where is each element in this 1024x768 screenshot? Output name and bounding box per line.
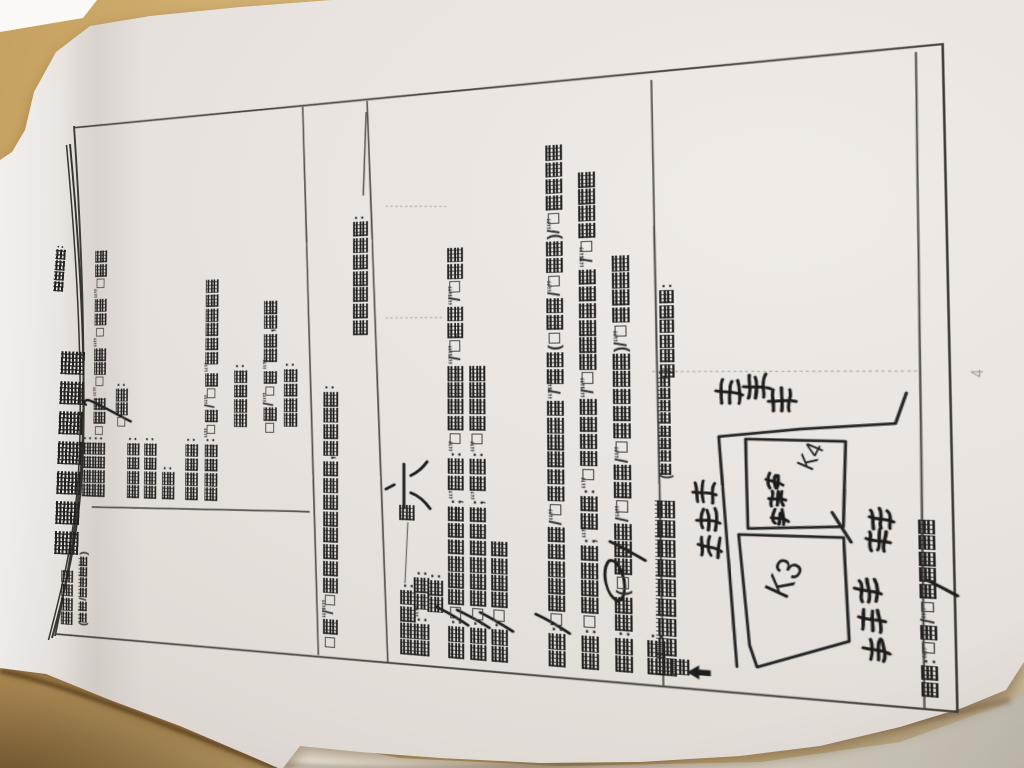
svg-text:K4: K4 [791,439,830,475]
svg-text:K3: K3 [757,553,812,605]
